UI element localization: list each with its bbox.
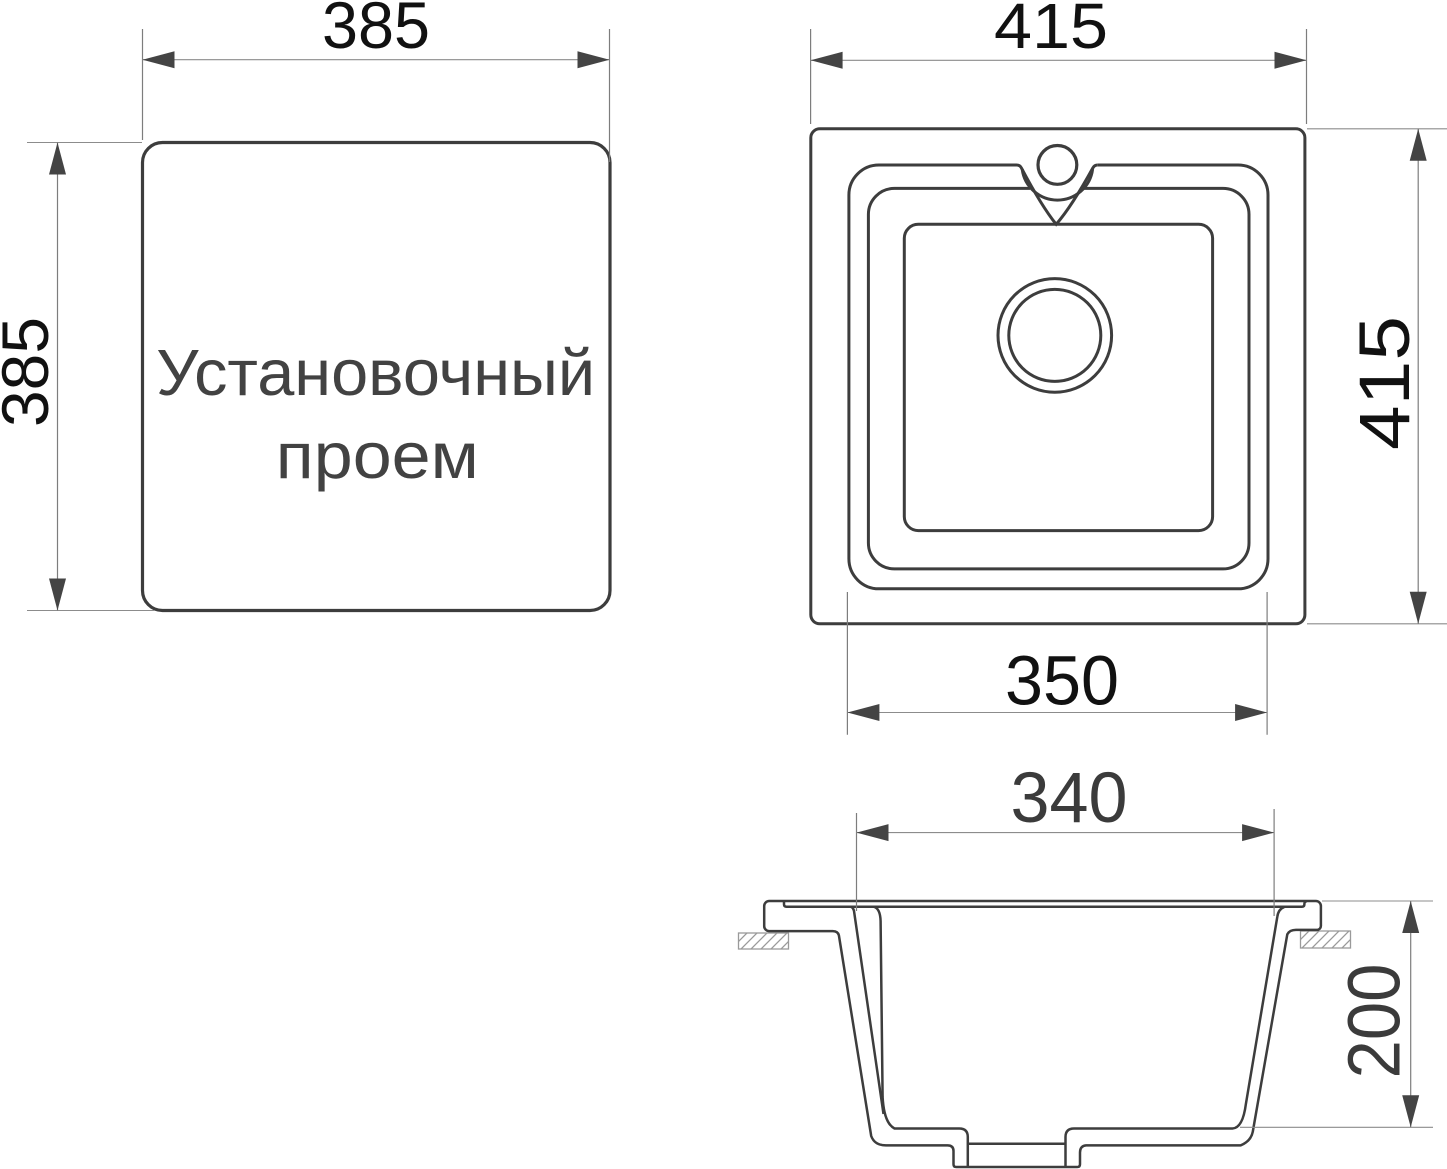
svg-text:415: 415 bbox=[1346, 316, 1425, 450]
svg-text:415: 415 bbox=[994, 0, 1108, 62]
svg-text:проем: проем bbox=[276, 419, 479, 492]
svg-text:200: 200 bbox=[1333, 964, 1416, 1079]
svg-text:340: 340 bbox=[1011, 759, 1128, 838]
svg-text:385: 385 bbox=[322, 0, 430, 62]
svg-text:350: 350 bbox=[1005, 642, 1119, 720]
svg-text:Установочный: Установочный bbox=[156, 336, 595, 409]
svg-text:385: 385 bbox=[0, 317, 62, 427]
